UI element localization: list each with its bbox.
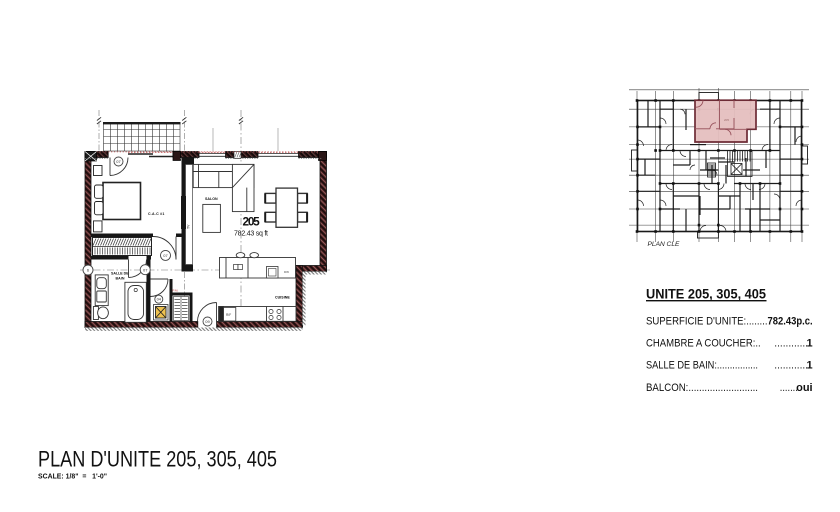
svg-text:SUPERFICIE D'UNITE:........: SUPERFICIE D'UNITE:........ <box>646 316 768 328</box>
svg-text:SALLE DE: SALLE DE <box>111 272 129 276</box>
svg-text:P.M.: P.M. <box>173 289 179 293</box>
svg-text:205: 205 <box>724 118 729 122</box>
svg-text:R/F: R/F <box>226 313 231 317</box>
svg-text:205: 205 <box>243 214 261 228</box>
svg-text:1: 1 <box>806 360 812 372</box>
svg-text:782.43p.c.: 782.43p.c. <box>768 316 813 328</box>
svg-text:PLAN CLE: PLAN CLE <box>648 241 680 248</box>
svg-text:SALON: SALON <box>205 197 218 201</box>
svg-text:BAIN: BAIN <box>116 276 125 280</box>
svg-text:PLAN D'UNITE 205, 305, 405: PLAN D'UNITE 205, 305, 405 <box>38 446 277 471</box>
svg-text:782.43 sq ft: 782.43 sq ft <box>234 230 268 237</box>
svg-text:04: 04 <box>157 297 162 302</box>
svg-text:SALLE DE BAIN:................: SALLE DE BAIN:................ <box>646 360 758 372</box>
svg-text:............: ............ <box>774 360 808 372</box>
svg-text:07: 07 <box>116 159 121 164</box>
svg-text:CHAMBRE A COUCHER:..: CHAMBRE A COUCHER:.. <box>646 338 761 350</box>
svg-text:oui: oui <box>796 382 813 394</box>
svg-text:CUISINE: CUISINE <box>275 296 290 300</box>
svg-text:UNITE 205, 305, 405: UNITE 205, 305, 405 <box>646 287 766 302</box>
svg-text:DW: DW <box>284 270 289 274</box>
svg-text:BALCON:.......................: BALCON:.......................... <box>646 382 758 394</box>
svg-text:07: 07 <box>143 267 148 272</box>
svg-text:1: 1 <box>806 338 812 350</box>
svg-text:TV: TV <box>187 224 191 229</box>
svg-text:C.A.C #1: C.A.C #1 <box>148 212 164 216</box>
svg-text:.......: ....... <box>780 382 798 394</box>
svg-text:07: 07 <box>163 253 168 258</box>
svg-text:SCALE: 1/8" = 1'-0": SCALE: 1/8" = 1'-0" <box>38 474 107 481</box>
svg-text:09: 09 <box>205 319 210 324</box>
svg-text:............: ............ <box>774 338 808 350</box>
